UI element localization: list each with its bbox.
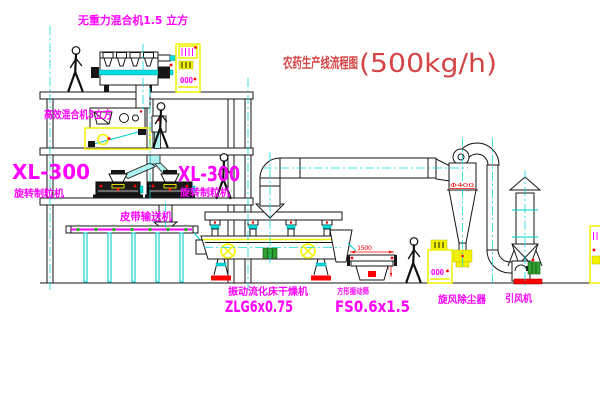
label-high-efficiency-mixer: 高效混合机3立方: [44, 108, 112, 121]
fan-motor: [528, 262, 540, 274]
fluid-bed-dryer: [196, 204, 356, 281]
label-granulator-left-model: XL-300: [12, 160, 90, 184]
screen-length-dim: 1500: [357, 244, 372, 252]
person-figure: [407, 238, 421, 282]
label-belt-conveyor: 皮带输送机: [119, 210, 172, 223]
label-screen-name: 方形振动筛: [337, 286, 369, 296]
cad-canvas: 000: [0, 0, 600, 403]
label-dryer-model: ZLG6x0.75: [225, 297, 293, 316]
process-flow-diagram: 000: [0, 0, 600, 403]
label-granulator-left-name: 旋转制粒机: [13, 187, 64, 200]
fan-downpipe: [487, 165, 512, 273]
label-cyclone: 旋风除尘器: [437, 293, 487, 306]
label-granulator-right-name: 旋转制粒机: [179, 186, 230, 199]
cabinet-display: 000: [431, 268, 444, 277]
exhaust-ductwork: [260, 158, 436, 206]
fan-base: [514, 279, 542, 284]
belt-conveyor: [66, 226, 203, 282]
downpipe-elbow: [487, 250, 512, 273]
label-fan: 引风机: [505, 292, 532, 305]
induced-draft-fan: [512, 259, 542, 284]
conveyor-legs: [84, 233, 183, 282]
control-cabinet-top: 000: [176, 44, 200, 92]
control-cabinet-cyclone: 000: [428, 240, 452, 283]
diagram-title: 农药生产线流程图: [282, 55, 358, 72]
label-granulator-right-model: XL-300: [178, 162, 240, 186]
label-screen-model: FS0.6x1.5: [335, 297, 410, 316]
diagram-capacity: (500kg/h): [359, 49, 497, 79]
person-figure: [69, 47, 83, 91]
label-zero-gravity-mixer: 无重力混合机1.5 立方: [77, 13, 188, 27]
control-cabinet-edge: [590, 226, 600, 283]
zero-gravity-mixer: [91, 52, 176, 108]
cabinet-display: 000: [180, 76, 193, 85]
